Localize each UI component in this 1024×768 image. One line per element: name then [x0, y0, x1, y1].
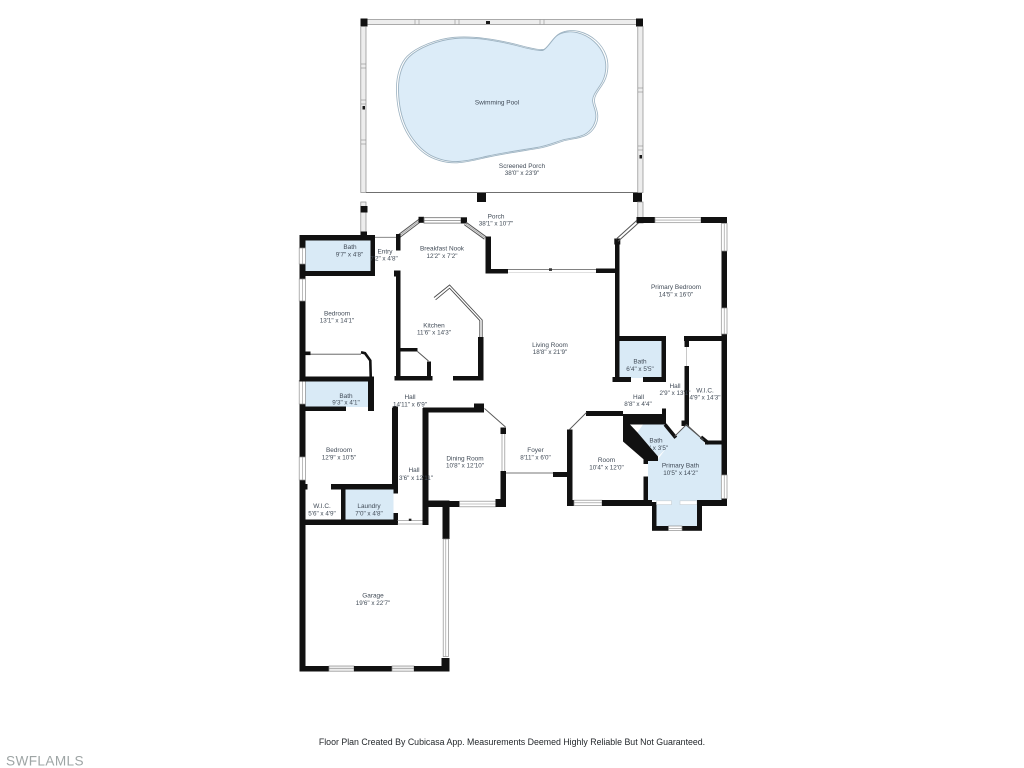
svg-text:Hall: Hall	[404, 394, 415, 401]
svg-text:Room: Room	[598, 457, 615, 464]
svg-text:6'4" x 5'5": 6'4" x 5'5"	[626, 366, 654, 373]
svg-text:Dining Room: Dining Room	[446, 456, 483, 463]
svg-text:W.I.C.: W.I.C.	[313, 503, 331, 510]
svg-text:9'7" x 4'8": 9'7" x 4'8"	[336, 251, 364, 258]
svg-text:10'8" x 12'10": 10'8" x 12'10"	[446, 463, 484, 470]
svg-text:Foyer: Foyer	[527, 447, 544, 454]
svg-text:18'8" x 21'9": 18'8" x 21'9"	[533, 349, 568, 356]
svg-text:Primary Bedroom: Primary Bedroom	[651, 284, 701, 291]
svg-text:3'6" x 12'11": 3'6" x 12'11"	[399, 475, 433, 482]
svg-text:10'4" x 12'0": 10'4" x 12'0"	[589, 465, 624, 472]
svg-text:38'0" x 23'9": 38'0" x 23'9"	[505, 170, 540, 177]
svg-text:12'9" x 10'5": 12'9" x 10'5"	[322, 455, 357, 462]
svg-text:Bath: Bath	[633, 359, 647, 366]
svg-text:4'9" x 14'3": 4'9" x 14'3"	[689, 395, 720, 402]
svg-text:7'0" x 4'8": 7'0" x 4'8"	[355, 511, 383, 518]
svg-text:Bath: Bath	[343, 244, 357, 251]
svg-text:Kitchen: Kitchen	[423, 323, 445, 330]
svg-text:' x 3'5": ' x 3'5"	[650, 445, 668, 452]
svg-text:8'11" x 6'0": 8'11" x 6'0"	[520, 455, 551, 462]
svg-text:14'5" x 16'0": 14'5" x 16'0"	[659, 292, 694, 299]
svg-text:2'9" x 13'1": 2'9" x 13'1"	[659, 390, 690, 397]
svg-text:7'2" x 4'8": 7'2" x 4'8"	[370, 255, 398, 262]
svg-text:9'3" x 4'1": 9'3" x 4'1"	[332, 400, 360, 407]
svg-text:Garage: Garage	[362, 593, 384, 600]
svg-text:8'8" x 4'4": 8'8" x 4'4"	[624, 401, 652, 408]
svg-text:19'6" x 22'7": 19'6" x 22'7"	[356, 600, 391, 607]
svg-text:Hall: Hall	[669, 383, 680, 390]
svg-text:Screened Porch: Screened Porch	[499, 163, 546, 170]
svg-text:Hall: Hall	[633, 394, 644, 401]
svg-text:Primary Bath: Primary Bath	[662, 463, 700, 470]
svg-text:Hall: Hall	[408, 467, 419, 474]
svg-text:11'6" x 14'3": 11'6" x 14'3"	[417, 330, 451, 337]
svg-text:Floor Plan Created By Cubicasa: Floor Plan Created By Cubicasa App. Meas…	[319, 737, 705, 747]
svg-text:12'2" x 7'2": 12'2" x 7'2"	[426, 253, 457, 260]
svg-text:Porch: Porch	[488, 214, 505, 221]
svg-text:5'6" x 4'9": 5'6" x 4'9"	[308, 511, 336, 518]
svg-text:Swimming Pool: Swimming Pool	[475, 100, 519, 107]
svg-text:Living Room: Living Room	[532, 342, 568, 349]
svg-text:W.I.C.: W.I.C.	[696, 388, 714, 395]
svg-text:Bath: Bath	[649, 438, 663, 445]
svg-text:13'1" x 14'1": 13'1" x 14'1"	[320, 318, 355, 325]
svg-text:Breakfast Nook: Breakfast Nook	[420, 246, 465, 253]
svg-text:SWFLAMLS: SWFLAMLS	[6, 754, 84, 768]
svg-text:14'11" x 6'9": 14'11" x 6'9"	[393, 402, 427, 409]
svg-text:Bedroom: Bedroom	[324, 311, 350, 318]
svg-text:10'5" x 14'2": 10'5" x 14'2"	[663, 470, 698, 477]
svg-text:Bedroom: Bedroom	[326, 447, 352, 454]
svg-text:Laundry: Laundry	[357, 503, 381, 510]
svg-text:38'1" x 10'7": 38'1" x 10'7"	[479, 221, 514, 228]
